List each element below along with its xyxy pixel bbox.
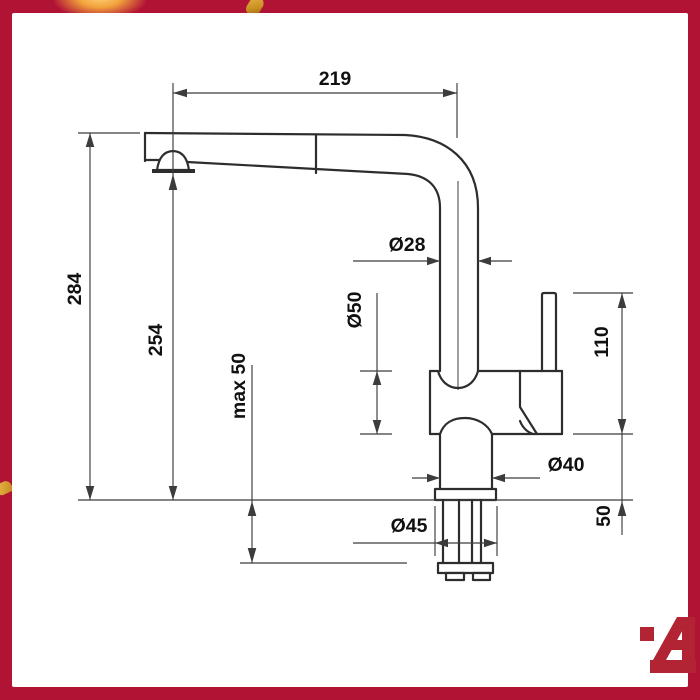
spout-inner-edge: [145, 160, 440, 371]
handle-lever: [542, 293, 556, 371]
dim-110-arrow-top: [618, 293, 627, 308]
mounting-nut: [438, 563, 493, 573]
dim-50-arrow-top: [618, 501, 627, 516]
dim-o45-arrow-left: [435, 539, 448, 548]
handle-housing-divider: [520, 371, 537, 434]
dim-219-line: [173, 83, 457, 138]
dim-219-arrow-left: [173, 89, 187, 98]
logo-baseline-bar: [650, 660, 696, 673]
dim-284-label: 284: [64, 273, 86, 306]
dim-284-arrow-bottom: [86, 486, 95, 500]
dim-o28-label: Ø28: [389, 234, 426, 256]
mounting-tab-right: [473, 573, 490, 580]
mounting-tab-left: [446, 573, 464, 580]
dim-o50-label: Ø50: [344, 291, 366, 328]
dim-o50-arrow-top: [373, 371, 382, 385]
dim-o40-arrow-right: [492, 474, 505, 483]
dimension-layer: 219 284 254 max 50 Ø28 Ø50 110: [64, 68, 633, 563]
dim-284-line: [78, 133, 140, 500]
dim-110-label: 110: [591, 326, 613, 358]
dim-110-arrow-bottom: [618, 419, 627, 434]
dim-max50-label: max 50: [228, 353, 250, 419]
base-flange: [435, 489, 496, 500]
dim-o50-arrow-bottom: [373, 420, 382, 434]
dim-284-arrow-top: [86, 133, 95, 147]
dim-o40-arrow-left: [427, 474, 440, 483]
dim-o45-arrow-right: [484, 539, 497, 548]
logo-a-right-stroke: [682, 617, 695, 660]
dim-o28-arrow-left: [427, 257, 440, 266]
dim-max50-arrow-bottom: [248, 548, 257, 563]
body-neck-dome: [440, 418, 492, 434]
dim-50-label: 50: [593, 505, 615, 527]
logo-square: [640, 627, 654, 641]
dim-254-arrow-bottom: [169, 486, 178, 500]
dim-254-arrow-top: [169, 174, 178, 190]
dim-o28-arrow-right: [478, 257, 491, 266]
dim-o45-label: Ø45: [391, 515, 428, 537]
dim-219-label: 219: [319, 68, 352, 90]
faucet-technical-drawing: 219 284 254 max 50 Ø28 Ø50 110: [0, 0, 700, 700]
dim-o40-label: Ø40: [548, 454, 585, 476]
dim-219-arrow-right: [443, 89, 457, 98]
shank-tube-lines: [443, 500, 481, 563]
dim-max50-arrow-top: [248, 501, 257, 516]
page: { "colors": { "frame": "#b11335", "line"…: [0, 0, 700, 700]
dim-max50-line: [240, 365, 407, 563]
body-top-edge: [430, 371, 562, 388]
dim-254-label: 254: [145, 324, 167, 357]
